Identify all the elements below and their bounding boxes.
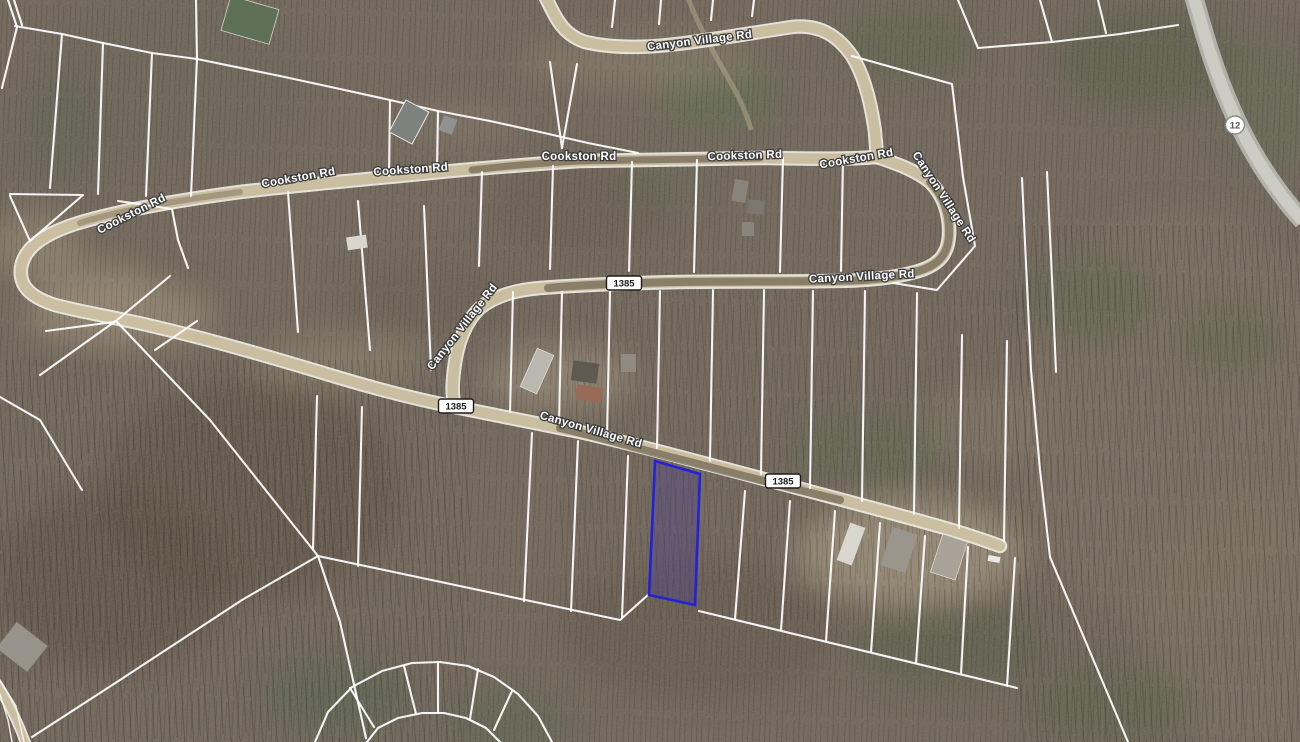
route-shield-1385: 1385 bbox=[607, 276, 642, 290]
svg-text:1385: 1385 bbox=[613, 279, 635, 290]
route-shield-1385: 1385 bbox=[439, 399, 474, 413]
outbuilding bbox=[747, 199, 764, 214]
route-shield-1385: 1385 bbox=[766, 474, 801, 488]
highlighted-parcel[interactable] bbox=[649, 461, 700, 605]
road-label: Cookston Rd bbox=[542, 151, 617, 163]
svg-text:1385: 1385 bbox=[445, 402, 467, 413]
satellite-parcel-map[interactable]: Canyon Village Rd Cookston Rd Cookston R… bbox=[0, 0, 1300, 742]
map-canvas[interactable]: Canyon Village Rd Cookston Rd Cookston R… bbox=[0, 0, 1300, 742]
svg-text:1385: 1385 bbox=[772, 477, 794, 488]
svg-text:12: 12 bbox=[1230, 121, 1241, 132]
small-building bbox=[621, 354, 636, 372]
white-trailer bbox=[346, 235, 368, 251]
outbuilding bbox=[742, 222, 754, 236]
dark-building bbox=[571, 360, 600, 383]
route-shield-12: 12 bbox=[1226, 116, 1245, 134]
